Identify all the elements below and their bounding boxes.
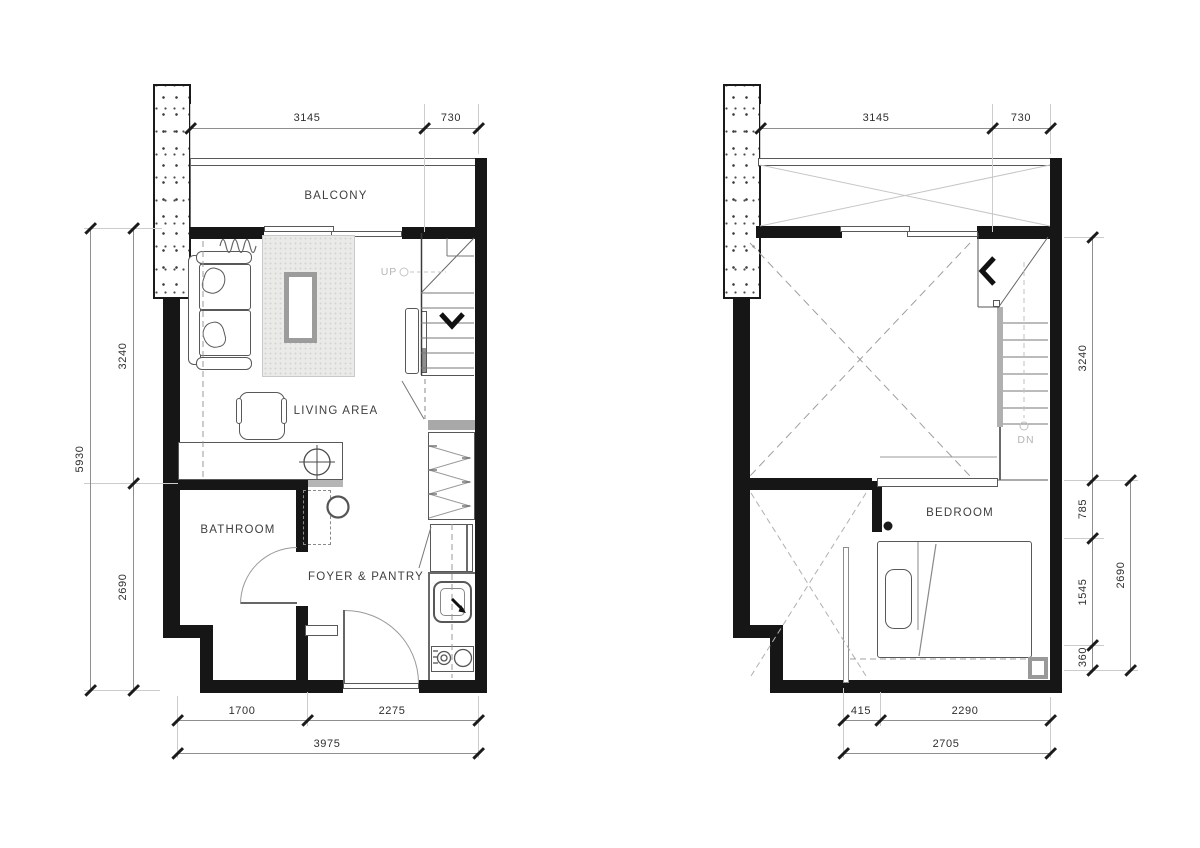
- stair-direction-chevron-down: [441, 314, 463, 326]
- fridge-door-swing: [419, 527, 431, 568]
- lower-void-x: [751, 493, 866, 676]
- door-pivot-dot: [884, 522, 893, 531]
- wardrobe-hangers: [429, 446, 470, 518]
- linework-overlay: [0, 0, 1200, 848]
- stairs-down: [978, 233, 1048, 480]
- closet-under-stairs: [402, 379, 425, 419]
- balcony-roof-x: [760, 165, 1050, 226]
- curtain-squiggle: [220, 240, 256, 253]
- desk-basin-crosshair: [299, 445, 335, 479]
- dn-marker: [1020, 422, 1028, 430]
- stair-direction-chevron-left: [982, 258, 994, 284]
- washer-drum: [328, 497, 349, 518]
- void-open-to-below-x: [750, 243, 970, 476]
- stairs-up: [421, 233, 474, 376]
- floor-plan-drawing: BALCONY LIVING AREA BATHROOM FOYER & PAN…: [0, 0, 1200, 848]
- faucet-arrow: [452, 599, 466, 613]
- bed-linework: [918, 542, 936, 656]
